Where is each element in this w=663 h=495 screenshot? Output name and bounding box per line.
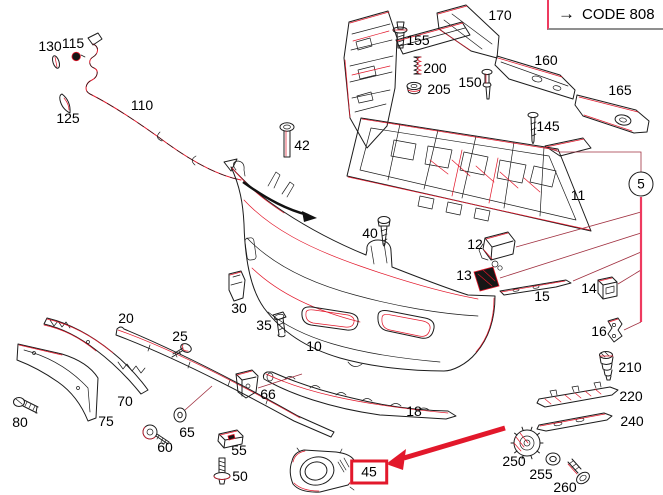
- part-label-160: 160: [534, 53, 557, 67]
- part-label-240: 240: [620, 414, 643, 428]
- part-drawing-80: [14, 398, 39, 414]
- part-drawing-200: [414, 57, 421, 74]
- part-label-150: 150: [458, 75, 481, 89]
- part-label-12: 12: [467, 237, 483, 251]
- part-drawing-12: [479, 232, 515, 270]
- part-drawing-foam-165: [575, 95, 649, 133]
- parts-diagram: 1301151251104215520020515017016016514511…: [0, 0, 663, 495]
- part-drawing-155: [393, 22, 407, 48]
- part-label-18: 18: [406, 404, 422, 418]
- part-label-40: 40: [362, 226, 378, 240]
- part-label-25: 25: [172, 329, 188, 343]
- part-label-55: 55: [231, 443, 247, 457]
- part-label-115: 115: [62, 36, 84, 50]
- part-label-65: 65: [179, 425, 195, 439]
- part-label-220: 220: [619, 389, 642, 403]
- part-label-60: 60: [157, 440, 173, 454]
- code-legend: → CODE 808: [547, 0, 663, 30]
- part-label-170: 170: [488, 8, 511, 22]
- part-drawing-210: [600, 352, 614, 381]
- part-label-14: 14: [581, 281, 597, 295]
- part-label-250: 250: [502, 454, 525, 468]
- part-drawing-strip-220: [537, 382, 618, 407]
- part-drawing-bumper-10: [224, 159, 495, 371]
- part-label-15: 15: [534, 289, 550, 303]
- part-drawing-50: [214, 458, 230, 484]
- part-label-75: 75: [98, 414, 114, 428]
- part-label-20: 20: [118, 311, 134, 325]
- part-label-50: 50: [232, 469, 248, 483]
- legend-arrow-icon: →: [558, 5, 575, 22]
- part-drawing-strip-20: [116, 327, 334, 437]
- part-label-165: 165: [608, 83, 631, 97]
- part-drawing-130: [51, 55, 61, 69]
- part-label-125: 125: [56, 111, 79, 125]
- leader-lines: [500, 147, 641, 330]
- part-drawing-30: [229, 271, 245, 301]
- part-label-145: 145: [536, 119, 559, 133]
- part-label-45: 45: [350, 460, 388, 485]
- part-drawing-35: [273, 312, 286, 337]
- part-drawing-13: [474, 267, 499, 291]
- part-drawing-40: [378, 217, 390, 247]
- part-drawing-harness-110: [86, 33, 245, 180]
- part-label-155: 155: [406, 33, 429, 47]
- group-callout: 5: [629, 172, 654, 197]
- part-label-13: 13: [456, 268, 472, 282]
- part-drawing-14: [598, 277, 617, 299]
- part-label-80: 80: [12, 415, 28, 429]
- legend-code-label: CODE 808: [582, 6, 655, 23]
- part-drawing-fog-bezel-45: [290, 448, 355, 492]
- part-label-30: 30: [231, 301, 247, 315]
- part-label-66: 66: [260, 387, 276, 401]
- part-label-42: 42: [294, 138, 310, 152]
- part-drawing-255: [546, 453, 560, 465]
- part-label-11: 11: [571, 188, 586, 202]
- part-drawing-115: [72, 52, 85, 60]
- part-label-205: 205: [427, 82, 450, 96]
- part-label-70: 70: [117, 394, 133, 408]
- part-label-255: 255: [529, 467, 552, 481]
- part-drawing-42: [280, 123, 294, 157]
- direction-arrow: [243, 182, 317, 222]
- part-drawing-strip-240: [537, 413, 612, 431]
- part-drawing-16: [608, 318, 622, 342]
- part-label-200: 200: [423, 61, 446, 75]
- highlight-arrow: [386, 428, 505, 470]
- part-drawing-150: [482, 69, 492, 99]
- part-label-130: 130: [38, 39, 61, 53]
- part-label-260: 260: [553, 480, 576, 494]
- part-label-10: 10: [306, 339, 322, 353]
- part-label-16: 16: [591, 324, 607, 338]
- part-drawing-65: [174, 386, 212, 422]
- part-drawing-strip-18: [263, 372, 456, 419]
- part-label-110: 110: [131, 98, 153, 112]
- part-label-210: 210: [618, 360, 641, 374]
- part-label-35: 35: [256, 318, 272, 332]
- part-drawing-205: [407, 82, 421, 93]
